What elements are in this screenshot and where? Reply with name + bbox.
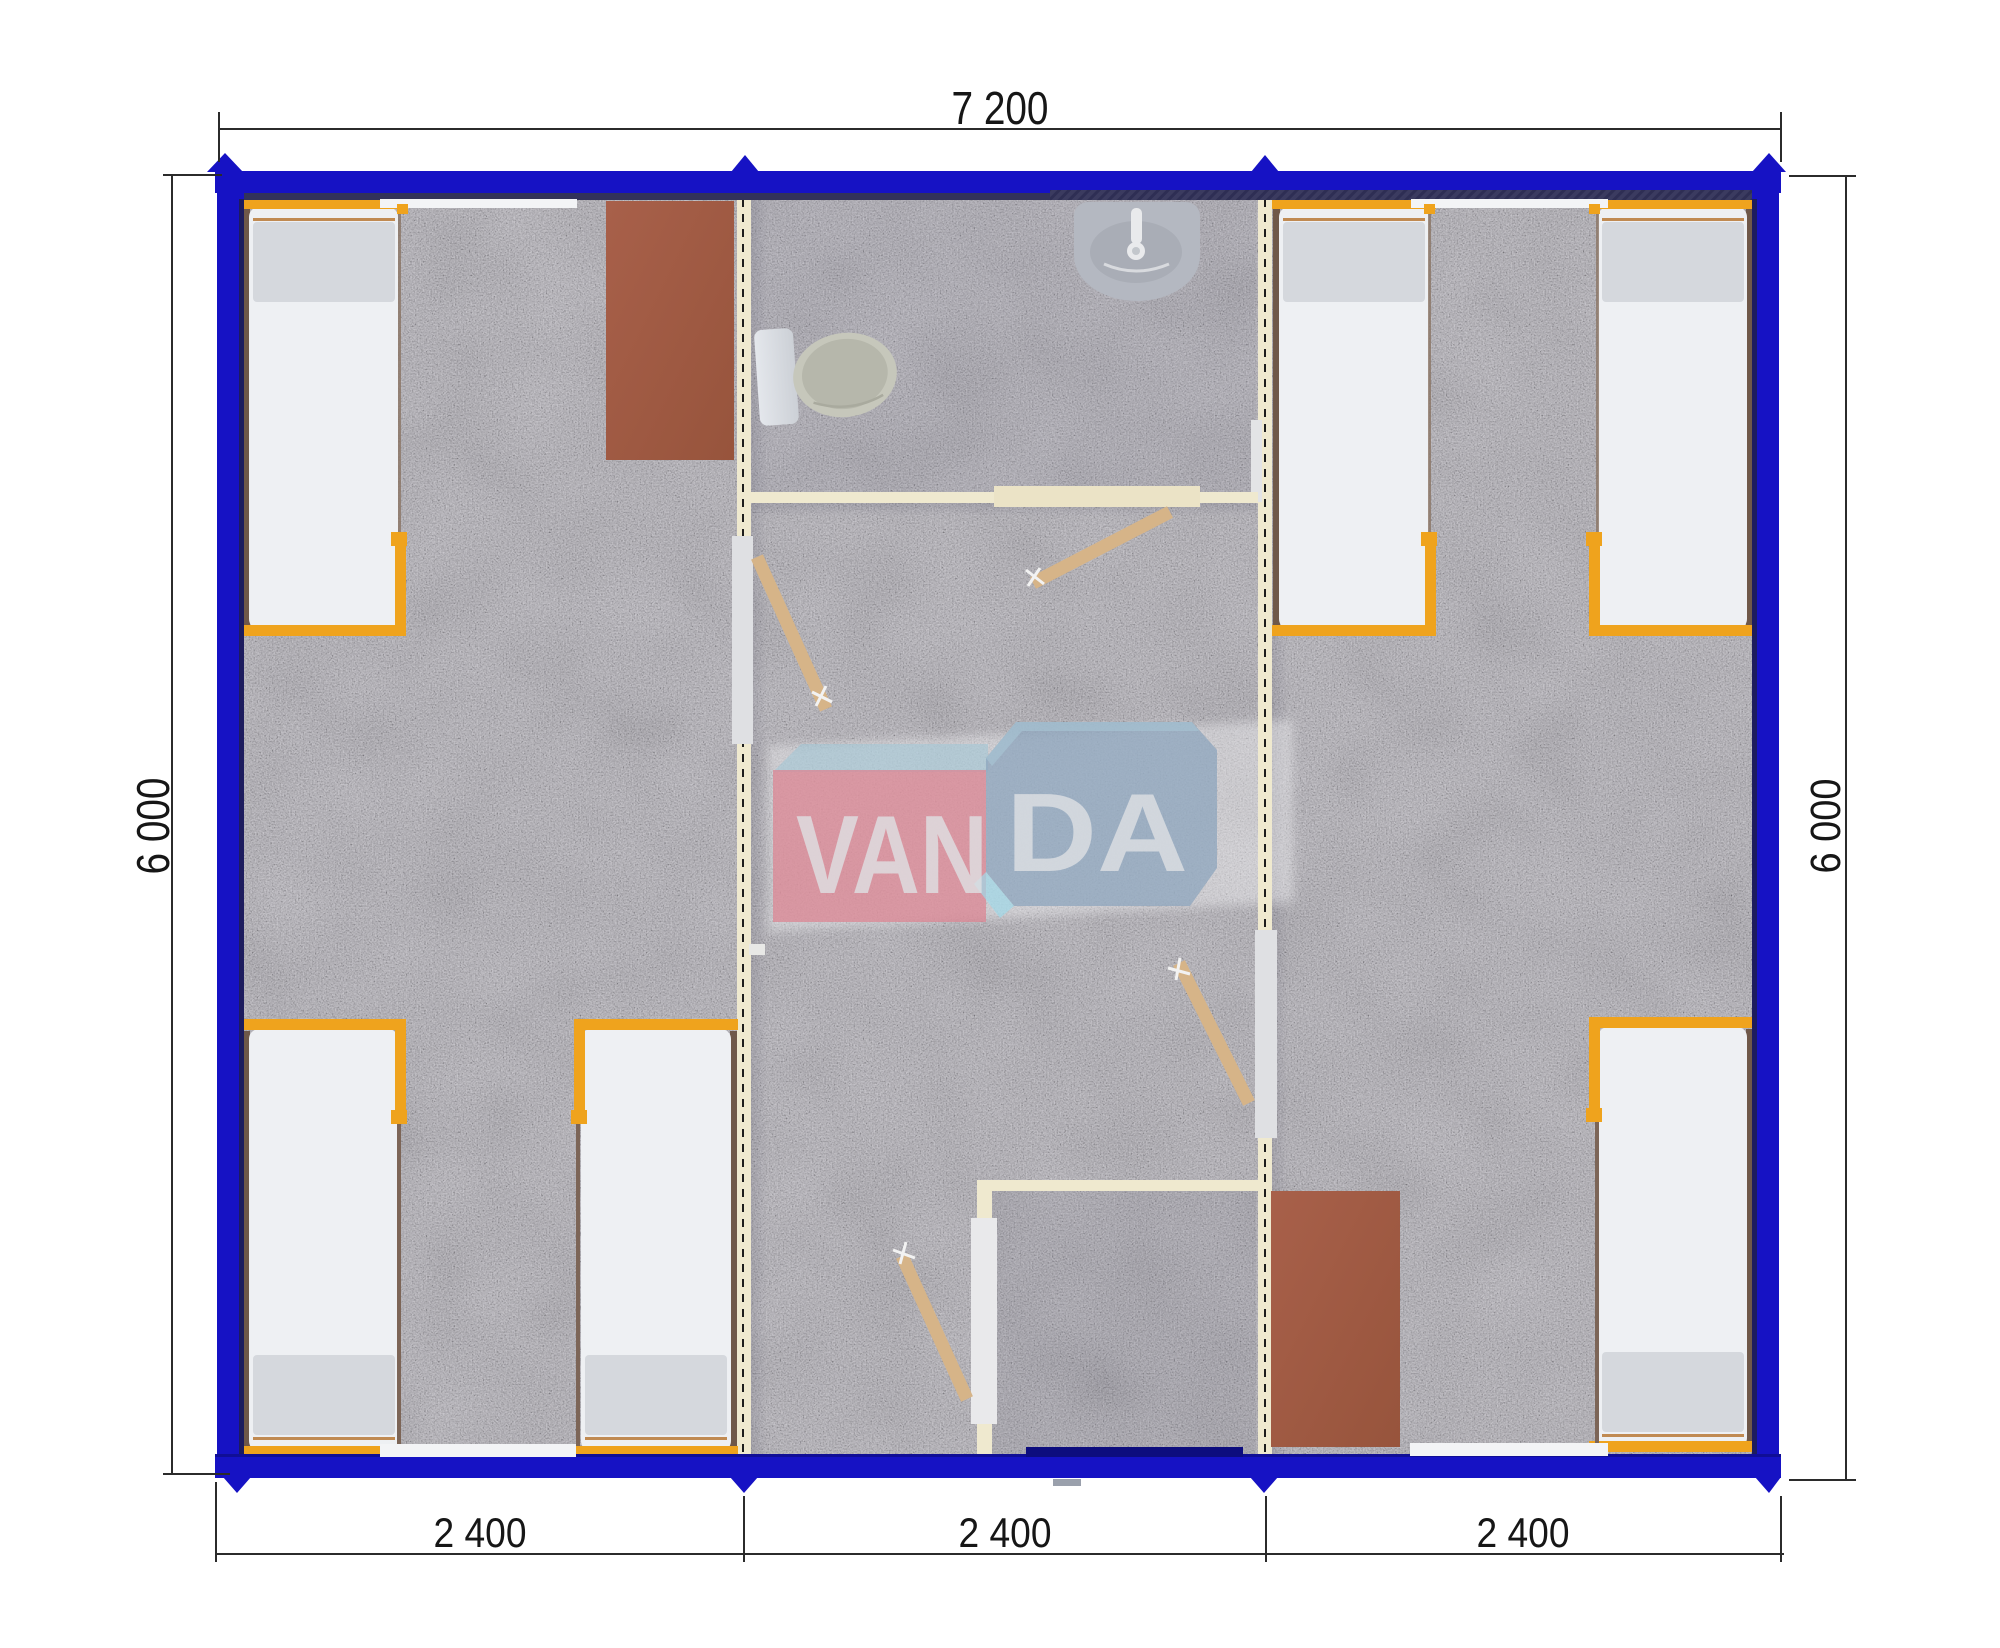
svg-text:6 000: 6 000	[1802, 779, 1850, 874]
svg-text:2 400: 2 400	[1477, 1509, 1570, 1556]
svg-text:2 400: 2 400	[959, 1509, 1052, 1556]
svg-text:2 400: 2 400	[434, 1509, 527, 1556]
svg-text:DA: DA	[1006, 771, 1188, 895]
svg-text:6 000: 6 000	[127, 778, 179, 875]
svg-text:7 200: 7 200	[952, 82, 1049, 134]
svg-text:VAN: VAN	[796, 793, 988, 917]
